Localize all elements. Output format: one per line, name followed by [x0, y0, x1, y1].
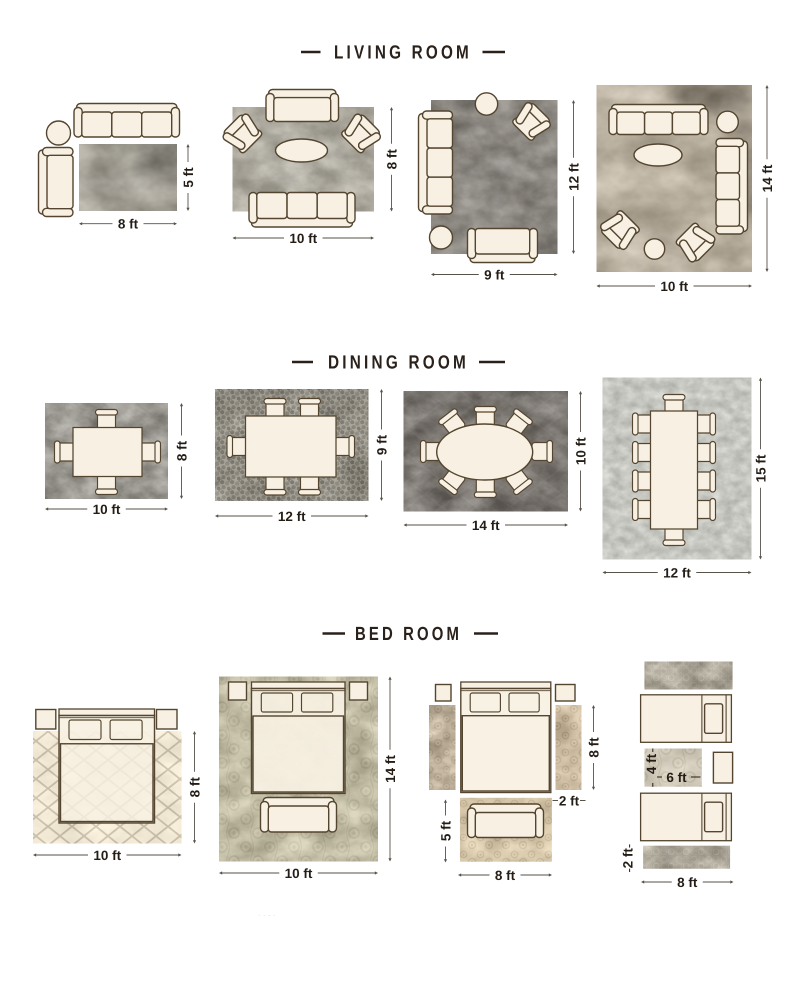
- svg-text:8 ft: 8 ft: [175, 440, 190, 461]
- svg-text:10 ft: 10 ft: [660, 279, 688, 294]
- svg-text:2 ft: 2 ft: [559, 794, 580, 809]
- svg-text:10 ft: 10 ft: [285, 866, 313, 881]
- svg-text:8 ft: 8 ft: [118, 217, 139, 232]
- svg-text:8 ft: 8 ft: [677, 875, 698, 890]
- svg-text:8 ft: 8 ft: [587, 737, 602, 758]
- svg-text:12 ft: 12 ft: [663, 566, 691, 581]
- svg-text:15 ft: 15 ft: [754, 454, 769, 482]
- svg-text:5 ft: 5 ft: [181, 167, 196, 188]
- svg-text:14 ft: 14 ft: [383, 755, 398, 783]
- svg-text:10 ft: 10 ft: [574, 437, 589, 465]
- svg-text:8 ft: 8 ft: [188, 777, 203, 798]
- svg-text:LIVING ROOM: LIVING ROOM: [334, 43, 472, 64]
- svg-text:BED ROOM: BED ROOM: [355, 624, 462, 645]
- svg-text:9 ft: 9 ft: [484, 268, 505, 283]
- svg-text:14 ft: 14 ft: [760, 164, 775, 192]
- svg-text:2 ft: 2 ft: [621, 848, 636, 869]
- svg-text:9 ft: 9 ft: [375, 434, 390, 455]
- svg-text:10 ft: 10 ft: [289, 231, 317, 246]
- svg-text:10 ft: 10 ft: [93, 502, 121, 517]
- svg-text:. . . .: . . . .: [258, 908, 276, 918]
- svg-text:14 ft: 14 ft: [472, 518, 500, 533]
- svg-text:DINING ROOM: DINING ROOM: [328, 353, 469, 374]
- svg-text:4 ft: 4 ft: [644, 753, 659, 774]
- svg-text:12 ft: 12 ft: [567, 163, 582, 191]
- svg-text:10 ft: 10 ft: [93, 848, 121, 863]
- svg-text:6 ft: 6 ft: [666, 770, 687, 785]
- svg-text:8 ft: 8 ft: [385, 149, 400, 170]
- svg-text:8 ft: 8 ft: [495, 868, 516, 883]
- svg-text:5 ft: 5 ft: [439, 820, 454, 841]
- svg-text:12 ft: 12 ft: [278, 509, 306, 524]
